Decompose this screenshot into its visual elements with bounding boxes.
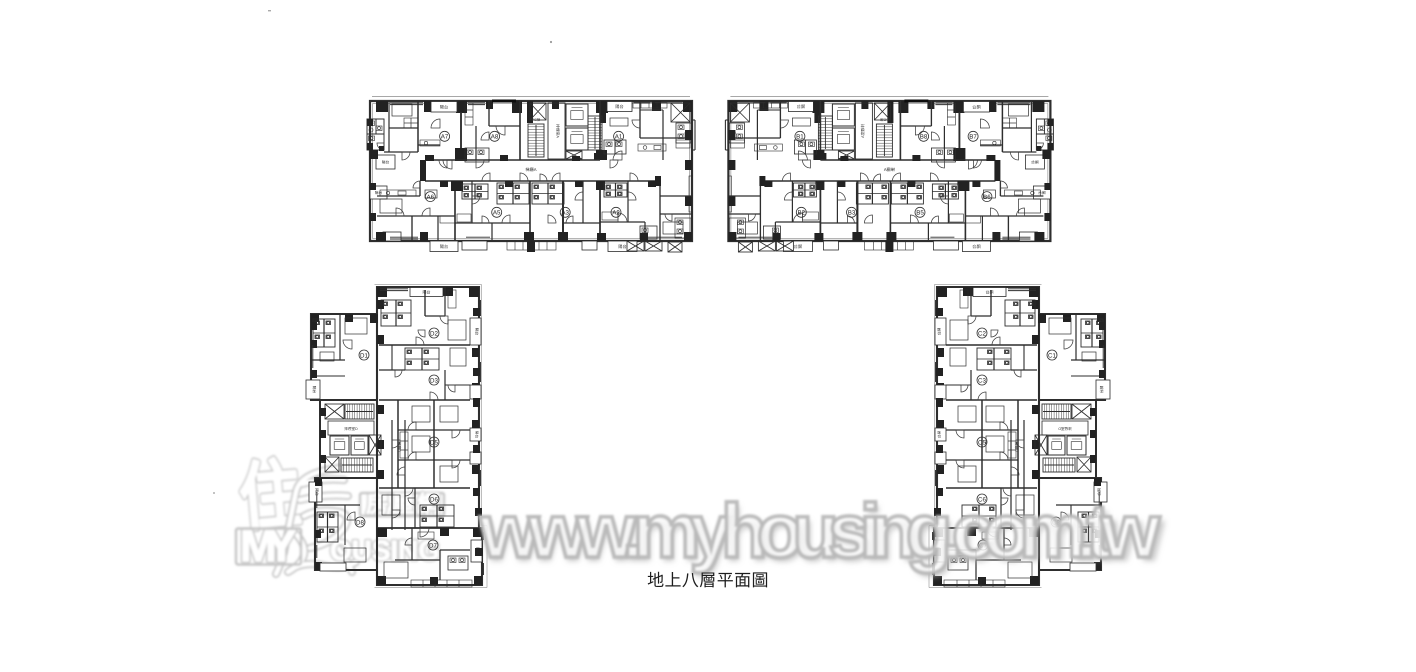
- svg-text:C2: C2: [978, 330, 986, 337]
- svg-text:D8: D8: [356, 519, 364, 526]
- svg-text:C3: C3: [978, 377, 986, 384]
- svg-text:B7: B7: [969, 134, 977, 141]
- svg-text:A5: A5: [493, 210, 501, 217]
- svg-text:排煙室D: 排煙室D: [344, 426, 358, 431]
- svg-text:D1: D1: [360, 352, 368, 359]
- svg-text:D3: D3: [430, 377, 438, 384]
- svg-text:陽台: 陽台: [475, 431, 480, 439]
- svg-text:陽台: 陽台: [382, 160, 390, 165]
- svg-text:陽台: 陽台: [475, 328, 480, 336]
- svg-text:B8: B8: [920, 134, 928, 141]
- svg-text:D7: D7: [429, 542, 437, 549]
- svg-text:D6: D6: [430, 496, 438, 503]
- svg-text:A7: A7: [441, 134, 449, 141]
- svg-text:PS梯: PS梯: [532, 117, 541, 122]
- svg-text:A2: A2: [612, 210, 620, 217]
- svg-text:B5: B5: [916, 210, 924, 217]
- svg-text:排煙室A: 排煙室A: [556, 124, 561, 138]
- svg-text:www.myhousing.com.tw: www.myhousing.com.tw: [479, 489, 1161, 574]
- svg-text:陽台: 陽台: [618, 244, 626, 249]
- svg-text:C1: C1: [1048, 352, 1056, 359]
- svg-text:B2: B2: [798, 210, 806, 217]
- svg-text:OUSING: OUSING: [330, 535, 440, 566]
- svg-text:陽台: 陽台: [440, 244, 448, 249]
- svg-text:MY: MY: [240, 522, 296, 571]
- svg-text:地上八層平面圖: 地上八層平面圖: [647, 571, 769, 590]
- svg-text:梯廳A: 梯廳A: [525, 167, 536, 172]
- svg-text:D2: D2: [430, 330, 438, 337]
- svg-text:陽台: 陽台: [312, 386, 317, 394]
- svg-text:B1: B1: [796, 134, 804, 141]
- svg-text:A6: A6: [427, 194, 435, 201]
- svg-text:陽台: 陽台: [440, 104, 448, 109]
- svg-text:B3: B3: [848, 210, 856, 217]
- svg-text:A3: A3: [561, 210, 569, 217]
- svg-text:陽台: 陽台: [615, 104, 623, 109]
- svg-text:B6: B6: [983, 194, 991, 201]
- svg-text:A8: A8: [491, 134, 499, 141]
- svg-text:A1: A1: [615, 134, 623, 141]
- svg-text:C5: C5: [978, 439, 986, 446]
- svg-text:陽台: 陽台: [423, 290, 431, 295]
- svg-text:陽台: 陽台: [375, 190, 383, 195]
- svg-text:D5: D5: [430, 439, 438, 446]
- svg-text:梯廳D: 梯廳D: [397, 442, 402, 453]
